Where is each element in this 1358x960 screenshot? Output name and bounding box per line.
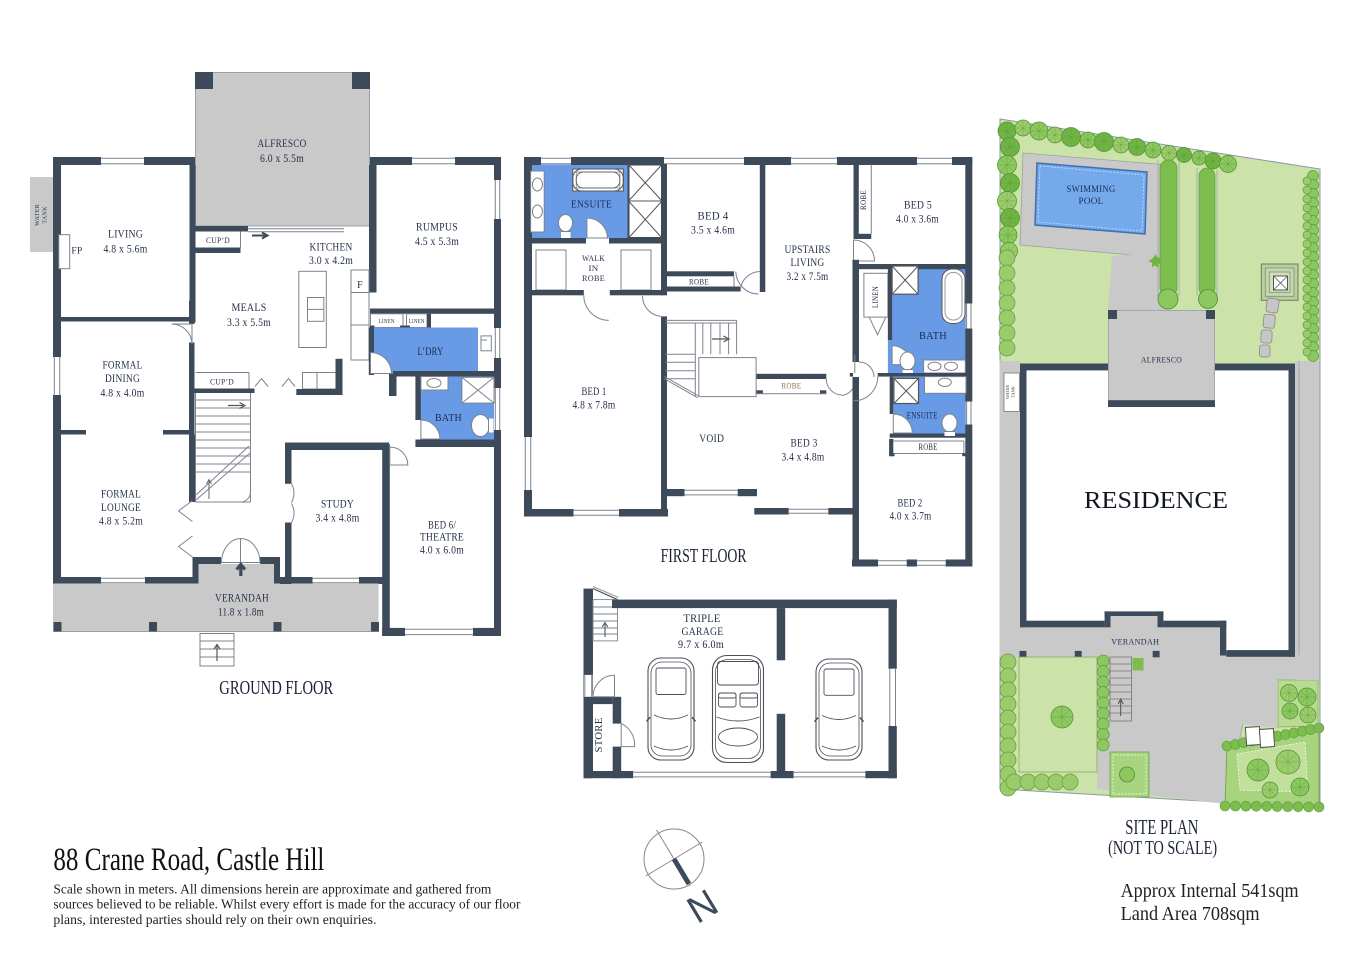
svg-text:4.0 x 3.6m: 4.0 x 3.6m: [896, 214, 939, 226]
svg-text:BED 6/: BED 6/: [428, 520, 456, 532]
svg-text:CUP’D: CUP’D: [210, 377, 234, 387]
svg-text:TRIPLE: TRIPLE: [684, 613, 721, 625]
svg-text:FORMAL: FORMAL: [101, 489, 141, 501]
svg-text:Approx Internal 541sqm: Approx Internal 541sqm: [1121, 880, 1299, 902]
svg-text:3.5 x 4.6m: 3.5 x 4.6m: [691, 225, 735, 237]
svg-text:SITE PLAN: SITE PLAN: [1125, 815, 1198, 839]
svg-text:FIRST FLOOR: FIRST FLOOR: [661, 545, 747, 567]
svg-text:ALFRESCO: ALFRESCO: [258, 138, 307, 150]
svg-text:STUDY: STUDY: [321, 499, 354, 511]
svg-text:4.8 x 5.6m: 4.8 x 5.6m: [104, 244, 148, 256]
svg-text:LIVING: LIVING: [791, 257, 825, 269]
svg-text:4.8 x 5.2m: 4.8 x 5.2m: [99, 516, 143, 528]
svg-text:plans, interested parties shou: plans, interested parties should rely on…: [53, 912, 376, 927]
svg-text:4.0 x 3.7m: 4.0 x 3.7m: [890, 511, 932, 523]
svg-text:TANK: TANK: [1011, 385, 1016, 397]
svg-text:sources believed to be reliab: sources believed to be reliable. Whilst …: [53, 897, 520, 912]
svg-text:L’DRY: L’DRY: [418, 346, 444, 358]
svg-text:ROBE: ROBE: [689, 277, 709, 286]
svg-text:3.4 x 4.8m: 3.4 x 4.8m: [782, 452, 825, 464]
svg-text:GROUND FLOOR: GROUND FLOOR: [219, 677, 333, 699]
svg-text:WALK: WALK: [582, 253, 606, 263]
svg-text:ROBE: ROBE: [781, 381, 801, 390]
svg-text:BED 1: BED 1: [582, 386, 607, 398]
svg-text:THEATRE: THEATRE: [420, 532, 464, 544]
svg-text:ENSUITE: ENSUITE: [907, 412, 938, 422]
svg-text:BATH: BATH: [919, 330, 947, 342]
svg-text:RESIDENCE: RESIDENCE: [1084, 488, 1228, 514]
svg-text:3.2 x 7.5m: 3.2 x 7.5m: [787, 271, 829, 283]
svg-text:IN: IN: [589, 263, 599, 273]
svg-text:SWIMMING: SWIMMING: [1067, 185, 1116, 195]
svg-text:Scale shown in meters. All dim: Scale shown in meters. All dimensions he…: [53, 881, 491, 896]
svg-text:ROBE: ROBE: [859, 190, 868, 210]
svg-text:11.8 x 1.8m: 11.8 x 1.8m: [218, 607, 264, 619]
svg-text:(NOT TO SCALE): (NOT TO SCALE): [1108, 837, 1217, 859]
svg-text:ROBE: ROBE: [582, 273, 605, 283]
svg-text:ENSUITE: ENSUITE: [571, 199, 612, 211]
svg-text:KITCHEN: KITCHEN: [310, 242, 353, 254]
svg-text:FP: FP: [71, 247, 82, 257]
svg-text:FORMAL: FORMAL: [103, 360, 143, 372]
svg-text:BED 3: BED 3: [791, 438, 818, 450]
svg-text:GARAGE: GARAGE: [682, 626, 724, 638]
svg-text:88 Crane Road, Castle Hill: 88 Crane Road, Castle Hill: [53, 842, 324, 878]
svg-text:BED 4: BED 4: [698, 211, 729, 223]
svg-text:4.5 x 5.3m: 4.5 x 5.3m: [415, 236, 459, 248]
svg-text:LINEN: LINEN: [871, 286, 880, 308]
svg-text:F: F: [357, 280, 363, 291]
svg-text:Land Area 708sqm: Land Area 708sqm: [1121, 903, 1260, 925]
svg-text:4.0 x 6.0m: 4.0 x 6.0m: [420, 545, 464, 557]
svg-text:4.8 x 7.8m: 4.8 x 7.8m: [573, 400, 616, 412]
svg-text:TANK: TANK: [42, 206, 49, 224]
svg-text:LIVING: LIVING: [108, 229, 143, 241]
svg-text:WATER: WATER: [1005, 385, 1010, 399]
svg-text:3.0 x 4.2m: 3.0 x 4.2m: [309, 255, 353, 267]
svg-text:4.8 x 4.0m: 4.8 x 4.0m: [101, 388, 145, 400]
svg-text:LINEN: LINEN: [379, 318, 395, 325]
svg-text:VOID: VOID: [699, 433, 724, 445]
svg-text:BATH: BATH: [435, 413, 462, 424]
svg-text:LOUNGE: LOUNGE: [101, 502, 141, 514]
svg-text:6.0 x 5.5m: 6.0 x 5.5m: [260, 153, 304, 165]
svg-text:BED 5: BED 5: [904, 200, 932, 212]
svg-text:BED 2: BED 2: [898, 498, 923, 510]
svg-text:VERANDAH: VERANDAH: [215, 593, 269, 605]
svg-text:ALFRESCO: ALFRESCO: [1141, 355, 1182, 365]
svg-text:STORE: STORE: [594, 718, 605, 753]
svg-text:UPSTAIRS: UPSTAIRS: [785, 244, 831, 256]
svg-text:POOL: POOL: [1079, 197, 1104, 207]
svg-text:RUMPUS: RUMPUS: [416, 222, 458, 234]
svg-text:DINING: DINING: [105, 373, 140, 385]
svg-text:3.3 x 5.5m: 3.3 x 5.5m: [227, 317, 271, 329]
svg-text:LINEN: LINEN: [409, 318, 425, 325]
svg-text:9.7 x 6.0m: 9.7 x 6.0m: [678, 639, 724, 651]
svg-text:MEALS: MEALS: [232, 302, 267, 314]
svg-text:3.4 x 4.8m: 3.4 x 4.8m: [316, 513, 360, 525]
svg-text:CUP’D: CUP’D: [206, 235, 230, 245]
svg-text:WATER: WATER: [34, 204, 41, 226]
svg-text:VERANDAH: VERANDAH: [1111, 638, 1159, 647]
svg-text:ROBE: ROBE: [919, 442, 938, 452]
